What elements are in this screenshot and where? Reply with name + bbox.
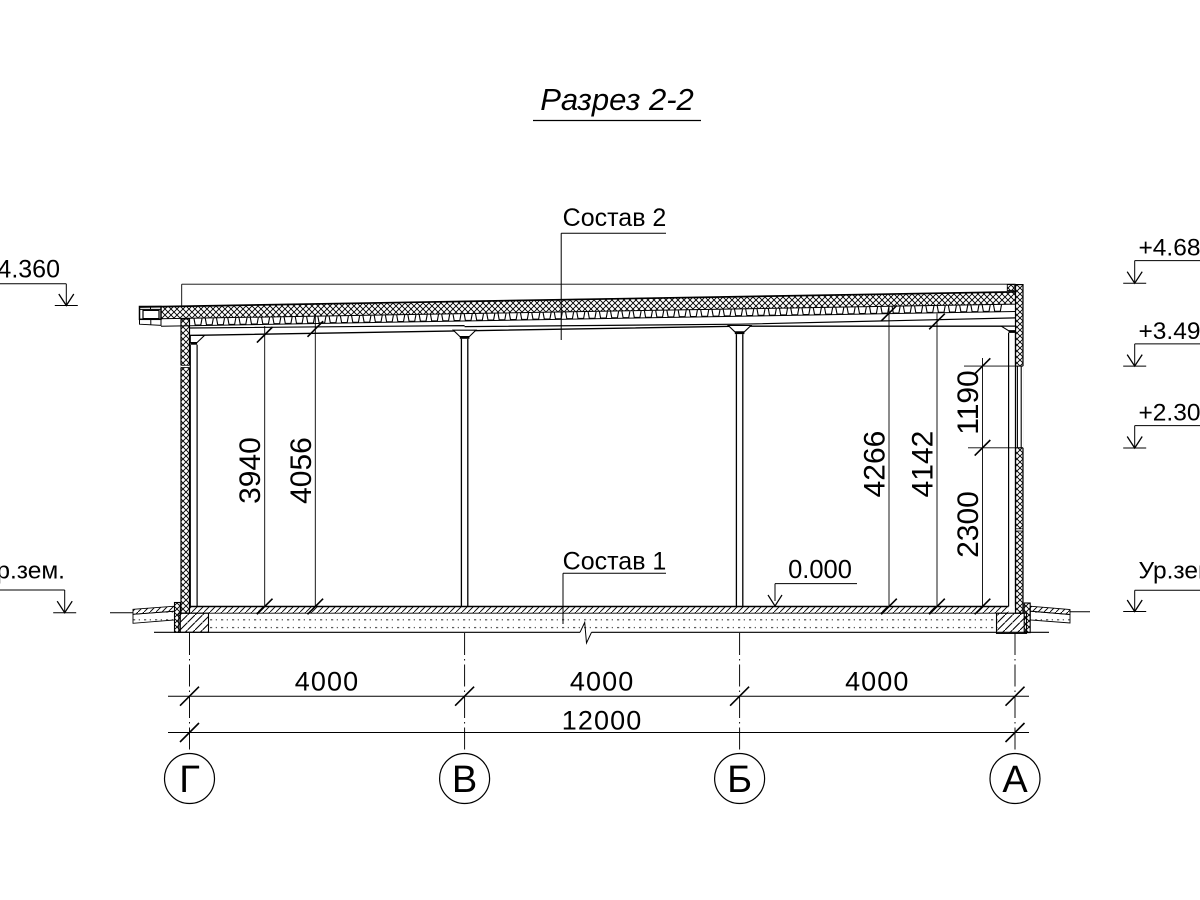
svg-text:3940: 3940 [234, 437, 267, 504]
svg-text:Ур.зем.: Ур.зем. [0, 558, 65, 585]
svg-text:А: А [1002, 759, 1028, 801]
svg-text:4000: 4000 [295, 667, 359, 697]
svg-text:0.000: 0.000 [788, 556, 852, 584]
svg-text:Г: Г [179, 759, 200, 801]
svg-text:4000: 4000 [845, 667, 909, 697]
svg-text:Состав 2: Состав 2 [563, 204, 667, 232]
svg-text:12000: 12000 [562, 706, 643, 736]
svg-text:Ур.зем.: Ур.зем. [1139, 558, 1200, 585]
svg-text:Состав 1: Состав 1 [563, 548, 667, 576]
svg-text:Разрез 2-2: Разрез 2-2 [540, 82, 694, 117]
svg-text:4000: 4000 [570, 667, 634, 697]
svg-text:+2.300: +2.300 [1139, 400, 1200, 427]
svg-text:4142: 4142 [907, 431, 940, 498]
svg-text:+4.680: +4.680 [1139, 235, 1200, 262]
svg-text:+4.360: +4.360 [0, 256, 60, 284]
svg-text:Б: Б [727, 759, 752, 801]
svg-text:В: В [452, 759, 477, 801]
svg-text:2300: 2300 [952, 491, 985, 558]
svg-text:4056: 4056 [285, 437, 318, 504]
svg-text:+3.490: +3.490 [1139, 318, 1200, 345]
svg-text:1190: 1190 [952, 370, 985, 435]
svg-text:4266: 4266 [859, 431, 892, 498]
